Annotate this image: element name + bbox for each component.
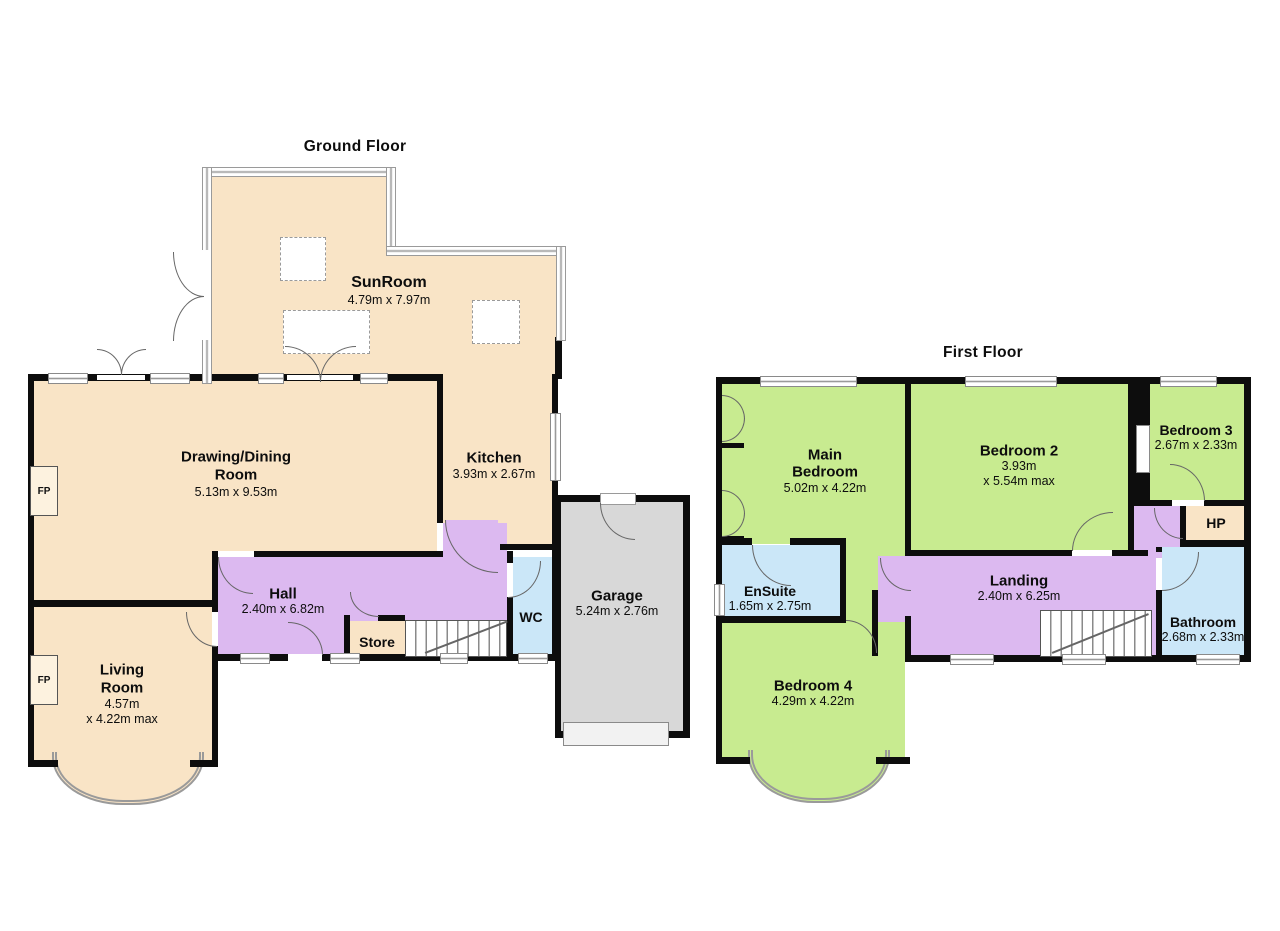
wall [378,615,405,621]
sunroom-window-wall [386,246,566,256]
wall [437,374,443,523]
hall-dims: 2.40m x 6.82m [242,602,325,616]
wall [28,600,218,607]
wall [905,550,1072,556]
window [714,584,725,616]
wall [344,615,350,621]
bedroom4-dims: 4.29m x 4.22m [772,694,855,708]
window [240,653,270,664]
living-room-dims: 4.57m [105,697,140,711]
bedroom2-dims2: x 5.54m max [983,474,1055,488]
wall [28,374,34,766]
wall [1204,500,1248,506]
sunroom-rooflight [472,300,520,344]
bathroom-dims: 2.68m x 2.33m [1162,630,1245,644]
window [48,373,88,384]
wall [555,495,600,502]
window [950,654,994,665]
fireplace-drawing-room: FP [30,466,58,516]
bedroom2-dims: 3.93m [1002,459,1037,473]
main-bedroom-label2: Bedroom [792,464,858,481]
kitchen-window [550,413,561,481]
wall [683,495,690,738]
french-door-arc [121,349,146,375]
window [965,376,1057,387]
fireplace-label: FP [38,486,51,497]
kitchen-dims: 3.93m x 2.67m [453,467,536,481]
bedroom3-dims: 2.67m x 2.33m [1155,438,1238,452]
garage-dims: 5.24m x 2.76m [576,604,659,618]
window [1196,654,1240,665]
ensuite-label: EnSuite [744,583,796,599]
main-bedroom-dims: 5.02m x 4.22m [784,481,867,495]
window [1160,376,1217,387]
wall [1112,550,1148,556]
chimney-niche [1136,425,1150,473]
wall [28,760,58,767]
wall [1180,540,1250,547]
wall [322,654,330,661]
french-door-arc [97,349,122,375]
wall [190,760,218,767]
wall [1244,377,1251,662]
window [440,653,468,664]
wall [555,337,562,379]
living-room-dims2: x 4.22m max [86,712,158,726]
wardrobe-divider [722,443,744,448]
sunroom-french-door-arc [173,296,204,341]
wall [634,495,690,502]
bedroom2-label: Bedroom 2 [980,443,1058,460]
wall [555,495,561,738]
wall [212,646,218,767]
garage-label: Garage [591,588,643,605]
hp-label: HP [1206,515,1225,531]
wall [254,551,443,557]
sunroom-window-wall [556,246,566,341]
window [330,653,360,664]
window [360,373,388,384]
fireplace-living-room: FP [30,655,58,705]
drawing-dining-dims: 5.13m x 9.53m [195,485,278,499]
wall [212,551,218,612]
bedroom4-bay-window [748,750,890,803]
wall [268,654,288,661]
wall [905,377,911,556]
drawing-dining-label: Drawing/Dining [181,449,291,466]
landing-label: Landing [990,573,1048,590]
wall [500,544,558,550]
floorplan-canvas: FP FP Ground Floor SunRoom 4.79m x 7.97m… [0,0,1280,931]
living-room-label2: Room [101,680,144,697]
sunroom-rooflight [280,237,326,281]
main-bedroom-label: Main [808,447,842,464]
garage-vehicle-door [563,722,669,746]
bedroom3-label: Bedroom 3 [1159,422,1232,438]
window [518,653,548,664]
wall [840,538,846,616]
window [1062,654,1106,665]
fireplace-label: FP [38,675,51,686]
wall [1156,590,1162,655]
drawing-dining-area-ext [34,551,212,600]
sunroom-label: SunRoom [351,274,427,292]
living-room-bay-window [52,752,204,805]
store-label: Store [359,634,395,650]
first-floor-title: First Floor [943,344,1023,362]
sunroom-dims: 4.79m x 7.97m [348,293,431,307]
ground-floor-title: Ground Floor [304,138,407,156]
sunroom-french-door-arc [173,252,204,297]
window [760,376,857,387]
living-room-label: Living [100,662,144,679]
wall [716,757,750,764]
wall [212,654,240,661]
wall [1148,500,1172,506]
wall [507,597,513,654]
wc-label: WC [519,609,542,625]
sunroom-window-wall [202,167,396,177]
bedroom4-label: Bedroom 4 [774,678,852,695]
window [150,373,190,384]
wall [716,616,846,623]
kitchen-label: Kitchen [466,450,521,467]
ensuite-dims: 1.65m x 2.75m [729,599,812,613]
drawing-dining-label2: Room [215,467,258,484]
sunroom-window-wall [386,167,396,255]
wall [790,538,846,545]
window [258,373,284,384]
wall [876,757,910,764]
door-opening [97,375,145,380]
hall-label: Hall [269,586,297,603]
landing-dims: 2.40m x 6.25m [978,589,1061,603]
bathroom-label: Bathroom [1170,614,1236,630]
